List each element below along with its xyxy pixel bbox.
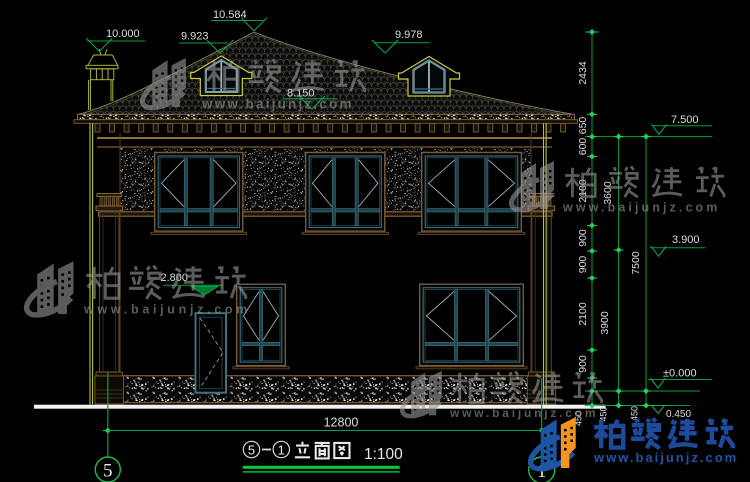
svg-text:7500: 7500 <box>630 251 642 275</box>
svg-text:9.978: 9.978 <box>395 29 423 41</box>
svg-text:900: 900 <box>577 355 589 373</box>
svg-text:www.baijunjz.com: www.baijunjz.com <box>562 201 720 215</box>
svg-text:1: 1 <box>278 443 285 458</box>
svg-text:9.923: 9.923 <box>181 31 209 43</box>
svg-text:www.baijunjz.com: www.baijunjz.com <box>201 97 354 112</box>
svg-text:www.baijunjz.com: www.baijunjz.com <box>83 303 251 317</box>
svg-text:10.000: 10.000 <box>106 28 140 40</box>
svg-text:2.800: 2.800 <box>161 272 189 284</box>
svg-text:12800: 12800 <box>324 416 359 430</box>
svg-text:2434: 2434 <box>577 61 589 85</box>
svg-text:900: 900 <box>577 229 589 247</box>
svg-text:1:100: 1:100 <box>364 446 403 463</box>
svg-text:5: 5 <box>248 443 255 458</box>
svg-text:7.500: 7.500 <box>671 114 699 126</box>
svg-text:900: 900 <box>577 256 589 274</box>
svg-text:650: 650 <box>577 117 589 135</box>
svg-text:www.baijunjz.com: www.baijunjz.com <box>449 406 598 420</box>
svg-text:10.584: 10.584 <box>213 9 247 21</box>
svg-text:2100: 2100 <box>577 302 589 326</box>
svg-text:600: 600 <box>577 138 589 156</box>
svg-text:3.900: 3.900 <box>672 234 700 246</box>
svg-text:0.450: 0.450 <box>666 409 691 420</box>
svg-text:±0.000: ±0.000 <box>663 368 697 380</box>
svg-text:5: 5 <box>103 461 113 482</box>
svg-text:3900: 3900 <box>599 311 611 335</box>
svg-text:450: 450 <box>599 406 609 421</box>
svg-text:www.baijunjz.com: www.baijunjz.com <box>593 450 738 465</box>
